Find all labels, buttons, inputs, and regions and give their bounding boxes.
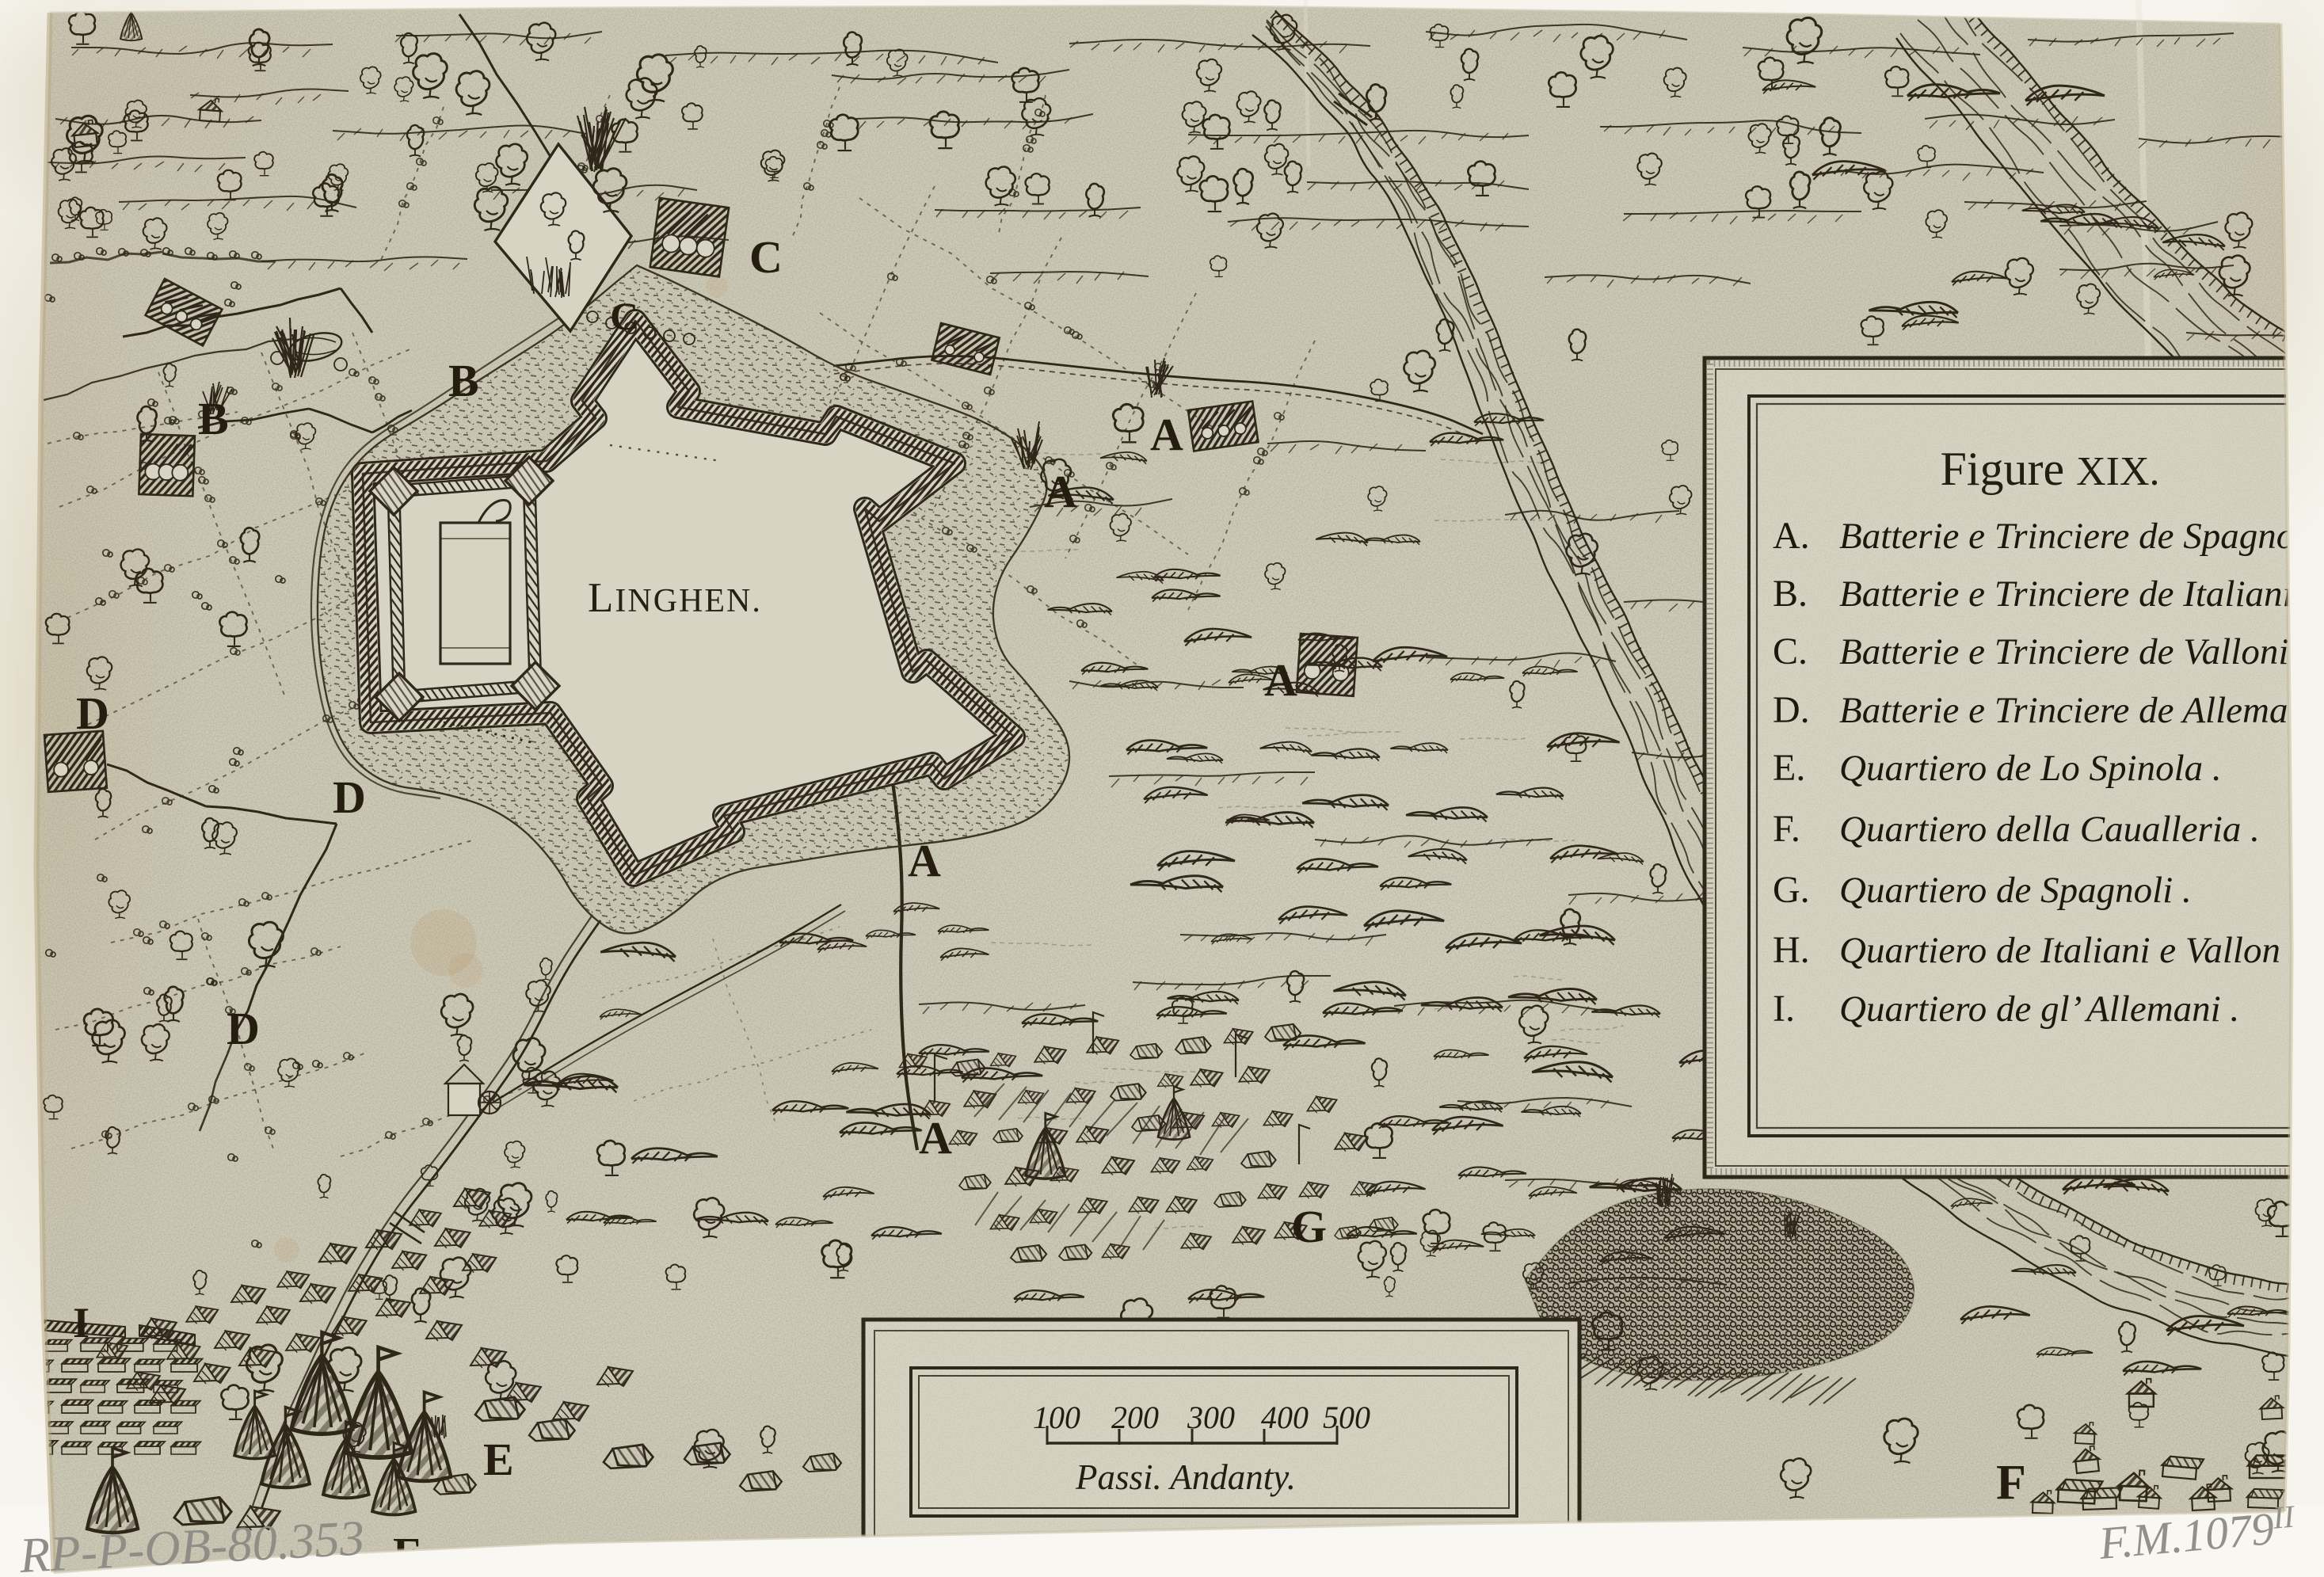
svg-text:A: A <box>1264 654 1297 706</box>
svg-text:300: 300 <box>1187 1400 1235 1435</box>
svg-text:H.: H. <box>1773 929 1810 971</box>
svg-text:A.: A. <box>1773 515 1810 557</box>
svg-text:Quartiero de Italiani e Vallon: Quartiero de Italiani e Vallon <box>1839 930 2280 971</box>
svg-text:F.: F. <box>1773 808 1800 850</box>
svg-text:E: E <box>483 1434 514 1485</box>
svg-text:B: B <box>198 393 229 444</box>
svg-text:500: 500 <box>1323 1400 1370 1435</box>
svg-text:A: A <box>919 1112 952 1164</box>
svg-text:F: F <box>1996 1456 2026 1510</box>
svg-text:C: C <box>610 294 638 338</box>
svg-text:E.: E. <box>1773 747 1805 789</box>
svg-text:D: D <box>76 688 109 739</box>
svg-text:200: 200 <box>1111 1400 1159 1435</box>
svg-text:B: B <box>448 355 479 406</box>
svg-text:Batterie e Trinciere de Vallon: Batterie e Trinciere de Valloni <box>1839 631 2288 672</box>
svg-text:Batterie e Trinciere de Allema: Batterie e Trinciere de Alleman <box>1839 690 2307 731</box>
svg-text:D: D <box>333 771 366 823</box>
svg-text:I: I <box>73 1299 90 1347</box>
svg-text:400: 400 <box>1261 1400 1309 1435</box>
svg-text:B.: B. <box>1773 573 1808 615</box>
svg-text:G: G <box>1291 1201 1327 1252</box>
svg-text:Batterie e Trinciere de Spagno: Batterie e Trinciere de Spagnol <box>1839 516 2305 557</box>
svg-text:Quartiero della Caualleria .: Quartiero della Caualleria . <box>1839 809 2260 850</box>
svg-text:D.: D. <box>1773 689 1810 731</box>
svg-text:Batterie e Trinciere de Italia: Batterie e Trinciere de Italiani <box>1839 573 2293 615</box>
svg-text:Quartiero de gl’ Allemani .: Quartiero de gl’ Allemani . <box>1839 988 2239 1030</box>
svg-text:Quartiero de Spagnoli .: Quartiero de Spagnoli . <box>1839 870 2192 911</box>
svg-text:A: A <box>1150 409 1183 460</box>
svg-text:G.: G. <box>1773 869 1810 911</box>
svg-text:Passi. Andanty.: Passi. Andanty. <box>1075 1457 1296 1497</box>
svg-text:Figure XIX.: Figure XIX. <box>1940 443 2159 495</box>
svg-text:C.: C. <box>1773 630 1808 672</box>
svg-text:D: D <box>227 1003 260 1054</box>
svg-text:Quartiero de Lo Spinola .: Quartiero de Lo Spinola . <box>1839 748 2222 789</box>
svg-text:A: A <box>1044 466 1077 517</box>
svg-text:A: A <box>908 835 941 886</box>
svg-text:I.: I. <box>1773 988 1795 1030</box>
svg-text:C: C <box>749 231 783 283</box>
svg-text:100: 100 <box>1033 1400 1080 1435</box>
